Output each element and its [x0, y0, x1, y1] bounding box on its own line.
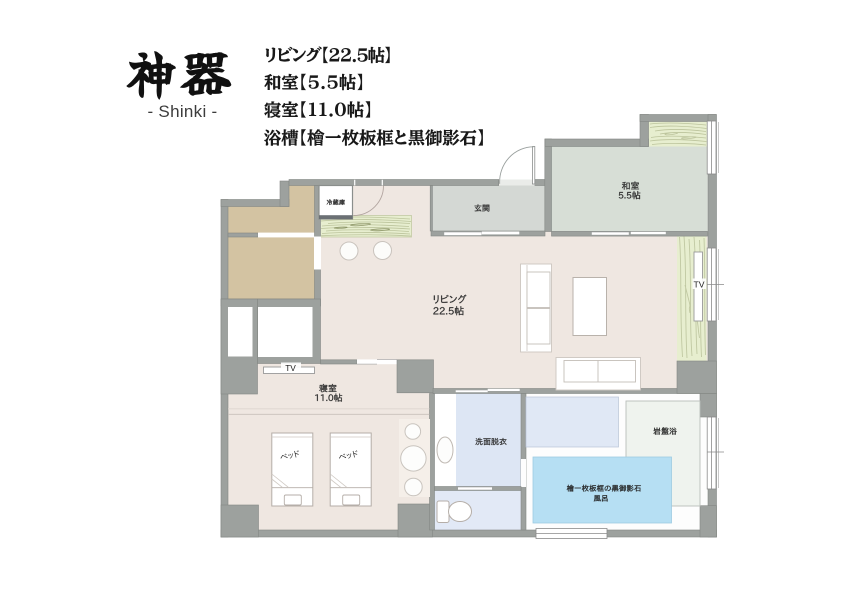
svg-text:- Shinki -: - Shinki -	[147, 102, 217, 121]
svg-text:TV: TV	[285, 363, 296, 373]
svg-text:TV: TV	[694, 280, 705, 290]
